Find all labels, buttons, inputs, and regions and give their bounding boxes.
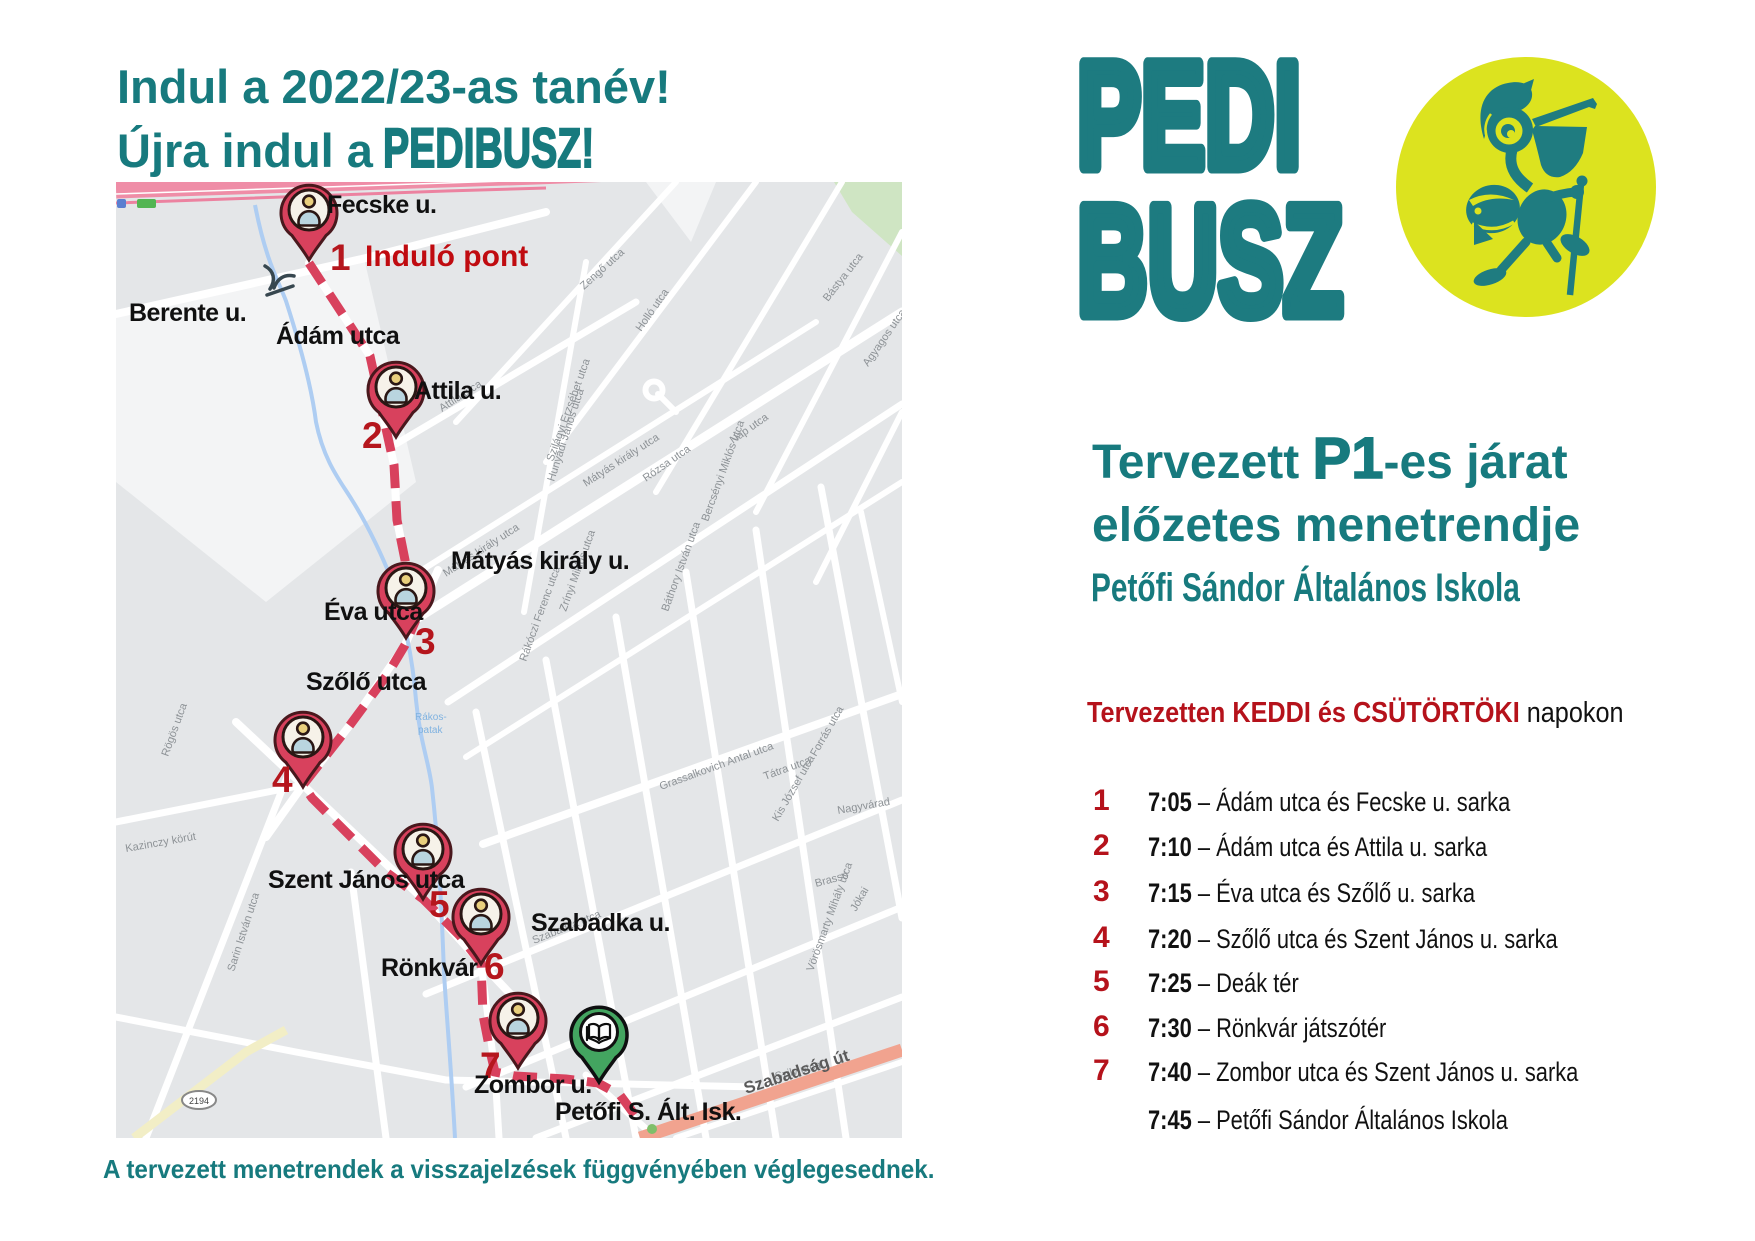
svg-text:Szőlő utca: Szőlő utca [306,668,428,696]
svg-text:patak: patak [418,725,443,736]
svg-text:Induló pont: Induló pont [365,240,528,273]
svg-text:1: 1 [330,237,351,278]
svg-text:6: 6 [484,946,505,987]
svg-text:2: 2 [362,415,383,456]
svg-text:Petőfi S. Ált. Isk.: Petőfi S. Ált. Isk. [555,1097,741,1126]
svg-text:Szent János utca: Szent János utca [268,866,466,894]
svg-text:Rönkvár: Rönkvár [381,954,478,982]
svg-text:Fecske u.: Fecske u. [327,191,436,219]
svg-text:Éva utca: Éva utca [324,597,424,626]
svg-text:BUSZ: BUSZ [1077,174,1343,330]
svg-text:4: 4 [272,759,293,800]
svg-text:Ádám utca: Ádám utca [276,321,401,350]
svg-text:Rákos-: Rákos- [415,712,447,723]
svg-text:3: 3 [415,621,436,662]
svg-text:2194: 2194 [189,1096,209,1106]
svg-text:Berente u.: Berente u. [129,299,246,327]
svg-text:Mátyás király u.: Mátyás király u. [451,547,629,575]
svg-text:Attila u.: Attila u. [414,377,501,405]
svg-text:Szabadka u.: Szabadka u. [531,909,670,937]
svg-text:Zombor u.: Zombor u. [474,1071,592,1099]
